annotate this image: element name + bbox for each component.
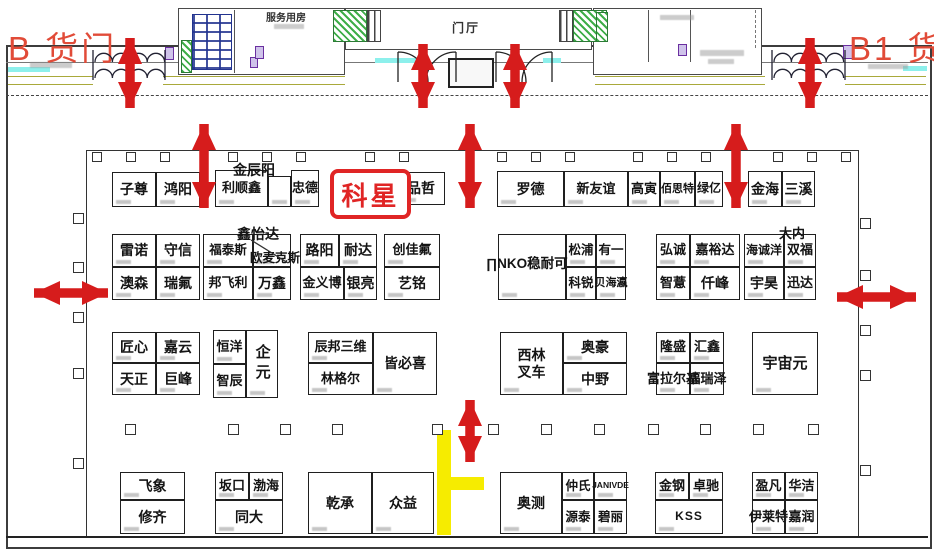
- booth-cell: 奥测: [500, 472, 562, 534]
- booth-cell: 伊莱特: [752, 500, 785, 534]
- column-marker: [541, 424, 552, 435]
- booth-overlabel: 金辰阳: [233, 160, 275, 180]
- stairs-steps-icon: [559, 10, 573, 42]
- hall-wall-left: [86, 150, 87, 537]
- booth-cell: 宇昊: [744, 267, 784, 300]
- column-marker: [648, 424, 659, 435]
- main-door: [448, 58, 494, 88]
- booth-cell: 罗德: [497, 171, 564, 207]
- booth-cell: KSS: [655, 500, 723, 534]
- column-marker: [73, 262, 84, 273]
- booth-cell: 嘉云: [156, 332, 200, 363]
- booth-cell: 辰邦三维: [308, 332, 373, 363]
- booth-cell: 宇宙元: [752, 332, 818, 395]
- column-marker: [73, 458, 84, 469]
- column-marker: [332, 424, 343, 435]
- booth-cell: 飞象: [120, 472, 185, 500]
- entrance-accent: [375, 58, 421, 63]
- booth-cell: 渤海: [249, 472, 283, 500]
- foyer-label: 门厅: [452, 19, 480, 36]
- strip-olive-line: [163, 76, 345, 85]
- booth-cell: 贝海瀛: [596, 267, 626, 300]
- booth-cell: 修齐: [120, 500, 185, 534]
- column-marker: [280, 424, 291, 435]
- column-marker: [667, 152, 677, 162]
- booth-cell: 智辰: [213, 364, 246, 398]
- booth-cell: 忠德: [291, 170, 319, 207]
- door-icon: [255, 46, 264, 59]
- booth-cell: 银亮: [344, 267, 377, 300]
- booth-cell: 智薏: [656, 267, 690, 300]
- booth-overlabel: 欧麦克斯: [250, 247, 300, 266]
- hall-wall-top: [86, 150, 858, 151]
- booth-cell: 隆盛: [656, 332, 690, 363]
- stairs-icon: [333, 10, 367, 42]
- booth-cell: 有一: [596, 234, 626, 267]
- stairs-icon: [181, 40, 192, 73]
- booth-cell: 迅达: [784, 267, 816, 300]
- gate-right-label: B1 货门: [849, 22, 934, 70]
- column-marker: [773, 152, 783, 162]
- booth-cell: 耐达: [339, 234, 377, 267]
- column-marker: [488, 424, 499, 435]
- booth-cell: 三溪: [782, 171, 815, 207]
- column-marker: [365, 152, 375, 162]
- column-marker: [73, 213, 84, 224]
- booth-cell: 福瑞泽: [690, 363, 724, 395]
- column-marker: [841, 152, 851, 162]
- column-marker: [633, 152, 643, 162]
- strip-dashed-line: [6, 95, 928, 96]
- booth-cell: 碧丽: [594, 500, 627, 534]
- booth-cell: 巨峰: [156, 363, 200, 395]
- column-marker: [808, 424, 819, 435]
- column-marker: [860, 218, 871, 229]
- column-marker: [399, 152, 409, 162]
- booth-cell: 佰思特: [660, 171, 695, 207]
- booth-cell: 金钢: [655, 472, 689, 500]
- service-room-label: 服务用房: [266, 9, 306, 24]
- booth-cell: 松浦: [566, 234, 596, 267]
- column-marker: [807, 152, 817, 162]
- column-marker: [753, 424, 764, 435]
- restroom-fixtures: [192, 14, 232, 70]
- booth-cell: 华洁: [785, 472, 818, 500]
- booth-cell: 子尊: [112, 172, 156, 207]
- booth-cell: 创佳氟: [384, 234, 440, 267]
- booth-cell: 恒洋: [213, 330, 246, 364]
- hall-wall-bottom: [6, 536, 928, 538]
- column-marker: [160, 152, 170, 162]
- route-path-arm: [437, 477, 484, 490]
- booth-cell: 汇鑫: [690, 332, 724, 363]
- booth-cell: 坂口: [215, 472, 249, 500]
- booth-cell: 仲氏: [562, 472, 594, 500]
- small-text-smudge: [708, 59, 734, 64]
- booth-cell: 鸿阳: [156, 172, 200, 207]
- entrance-accent: [543, 58, 561, 63]
- booth-cell: 守信: [156, 234, 200, 267]
- booth-cell: 金义博: [300, 267, 344, 300]
- booth-cell: 绿亿: [695, 171, 723, 207]
- column-marker: [497, 152, 507, 162]
- booth-cell: 新友谊: [564, 171, 628, 207]
- booth-cell: 高寅: [628, 171, 660, 207]
- booth-cell: 瑞氟: [156, 267, 200, 300]
- column-marker: [296, 152, 306, 162]
- booth-cell: 弘诚: [656, 234, 690, 267]
- booth-cell: 林格尔: [308, 363, 373, 395]
- booth-cell: 澳森: [112, 267, 156, 300]
- column-marker: [73, 312, 84, 323]
- small-text-smudge: [660, 15, 694, 20]
- booth-overlabel: ∏NKO稳耐可: [486, 252, 568, 272]
- column-marker: [126, 152, 136, 162]
- booth-cell: 富拉尔基: [656, 363, 690, 395]
- strip-olive-line: [845, 76, 926, 85]
- booth-kexing-highlight: 科星: [330, 169, 411, 219]
- booth-cell: 嘉裕达: [690, 234, 740, 267]
- column-marker: [125, 424, 136, 435]
- gate-left-label: B 货门: [8, 22, 117, 70]
- hall-wall-right: [858, 150, 859, 537]
- booth-cell: 皆必喜: [373, 332, 437, 395]
- column-marker: [228, 424, 239, 435]
- booth-cell: 盈凡: [752, 472, 785, 500]
- booth-cell: 路阳: [300, 234, 339, 267]
- booth-cell: 西林叉车: [500, 332, 563, 395]
- management-building-wall: [648, 10, 649, 62]
- booth-cell: 匠心: [112, 332, 156, 363]
- booth-overlabel: 鑫怡达: [237, 224, 279, 244]
- column-marker: [860, 465, 871, 476]
- booth-overlabel: 大内: [779, 223, 805, 242]
- column-marker: [73, 368, 84, 379]
- door-icon: [678, 44, 687, 56]
- booth-cell: 众益: [372, 472, 434, 534]
- column-marker: [860, 270, 871, 281]
- small-text-smudge: [700, 50, 744, 56]
- column-marker: [701, 152, 711, 162]
- stairs-steps-icon: [367, 10, 381, 42]
- door-icon: [165, 47, 174, 60]
- booth-cell: 嘉润: [785, 500, 818, 534]
- booth-cell: 源泰: [562, 500, 594, 534]
- booth-cell: 雷诺: [112, 234, 156, 267]
- shaft-dashed: [755, 10, 756, 48]
- column-marker: [860, 325, 871, 336]
- booth-cell: JANIVDE: [594, 472, 627, 500]
- floorplan: 服务用房 门厅 B 货门 B1 货门 子尊 鸿阳 利顺鑫 忠德 金辰阳 科星 品…: [0, 0, 934, 552]
- column-marker: [92, 152, 102, 162]
- booth-cell: 仟峰: [690, 267, 740, 300]
- booth-cell: 海诚洋: [744, 234, 784, 267]
- booth-cell-empty: [268, 176, 291, 207]
- column-marker: [565, 152, 575, 162]
- stairs-icon: [596, 12, 608, 42]
- small-text-smudge: [274, 24, 304, 29]
- booth-cell: 天正: [112, 363, 156, 395]
- column-marker: [860, 370, 871, 381]
- column-marker: [594, 424, 605, 435]
- booth-cell: 乾承: [308, 472, 372, 534]
- booth-cell: 奥豪: [563, 332, 627, 363]
- booth-cell: 卓驰: [689, 472, 723, 500]
- strip-olive-line: [8, 76, 93, 85]
- booth-cell: 中野: [563, 363, 627, 395]
- strip-olive-line: [595, 76, 765, 85]
- column-marker: [531, 152, 541, 162]
- booth-cell: 同大: [215, 500, 283, 534]
- column-marker: [700, 424, 711, 435]
- booth-cell: 科锐: [566, 267, 596, 300]
- booth-cell: 企元: [246, 330, 278, 398]
- service-building-wall: [234, 10, 235, 73]
- booth-cell: 艺铭: [384, 267, 440, 300]
- booth-cell: 邦飞利: [203, 267, 253, 300]
- booth-cell: 金海: [748, 171, 782, 207]
- booth-cell: 万鑫: [253, 267, 291, 300]
- column-marker: [432, 424, 443, 435]
